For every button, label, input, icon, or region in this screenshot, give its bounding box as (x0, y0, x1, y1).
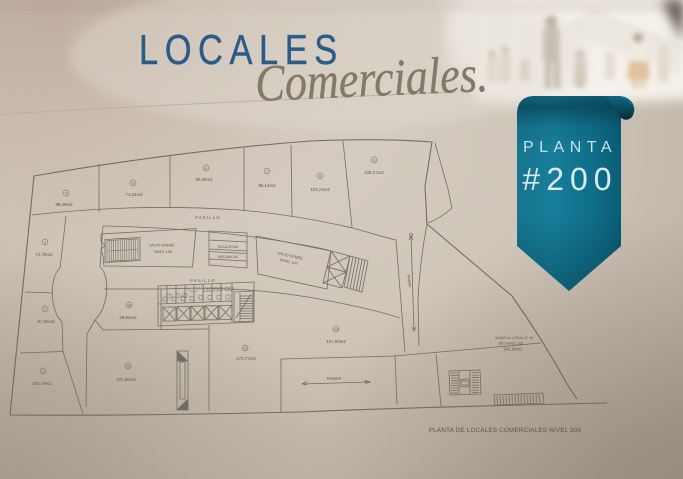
svg-text:3: 3 (44, 241, 46, 245)
svg-text:137,83m2: 137,83m2 (326, 339, 346, 344)
svg-text:VACIO SOBRE: VACIO SOBRE (149, 244, 175, 248)
svg-text:1: 1 (42, 370, 44, 374)
svg-text:172,77m2: 172,77m2 (236, 356, 256, 361)
svg-text:241,98m2: 241,98m2 (503, 347, 523, 352)
svg-text:59,65m2: 59,65m2 (119, 315, 137, 320)
svg-text:5: 5 (132, 182, 134, 186)
svg-text:87,83m2: 87,83m2 (37, 319, 55, 324)
svg-text:4: 4 (65, 192, 67, 196)
svg-text:90,39m2: 90,39m2 (195, 177, 213, 182)
svg-text:99,49m2: 99,49m2 (55, 202, 73, 207)
svg-text:PASILLO: PASILLO (195, 215, 221, 220)
svg-text:88,14m2: 88,14m2 (258, 183, 276, 188)
svg-text:71,04m2: 71,04m2 (125, 192, 143, 197)
svg-text:#200: #200 (522, 161, 617, 197)
svg-text:105,78m2: 105,78m2 (32, 381, 52, 386)
svg-text:13: 13 (334, 328, 338, 332)
svg-text:8: 8 (319, 175, 321, 179)
svg-text:9: 9 (373, 159, 375, 163)
svg-text:PASILLO: PASILLO (190, 278, 216, 283)
svg-text:NIVEL 100: NIVEL 100 (154, 250, 172, 254)
svg-text:PLANTA: PLANTA (523, 139, 617, 156)
svg-text:RAMPA: RAMPA (327, 376, 342, 381)
svg-text:Comerciales.: Comerciales. (254, 46, 489, 113)
svg-text:6: 6 (205, 167, 207, 171)
svg-text:ESCALERAS: ESCALERAS (218, 245, 239, 249)
svg-text:7: 7 (266, 170, 268, 174)
svg-text:2: 2 (44, 308, 46, 312)
svg-text:71,78m2: 71,78m2 (35, 252, 53, 257)
svg-text:PLANTA DE LOCALES COMERCIALES: PLANTA DE LOCALES COMERCIALES NIVEL 200 (429, 427, 582, 434)
svg-text:11: 11 (126, 365, 130, 369)
svg-text:10: 10 (127, 304, 131, 308)
svg-text:106,27m2: 106,27m2 (364, 170, 384, 175)
svg-text:DEL NIVEL 100: DEL NIVEL 100 (499, 342, 524, 346)
svg-text:12: 12 (243, 347, 247, 351)
svg-text:UNIDO AL LOCAL N° 10: UNIDO AL LOCAL N° 10 (495, 336, 533, 340)
svg-text:MECANICAS: MECANICAS (218, 255, 239, 259)
svg-text:103,74m2: 103,74m2 (310, 187, 330, 192)
svg-text:227,80m2: 227,80m2 (116, 377, 136, 382)
